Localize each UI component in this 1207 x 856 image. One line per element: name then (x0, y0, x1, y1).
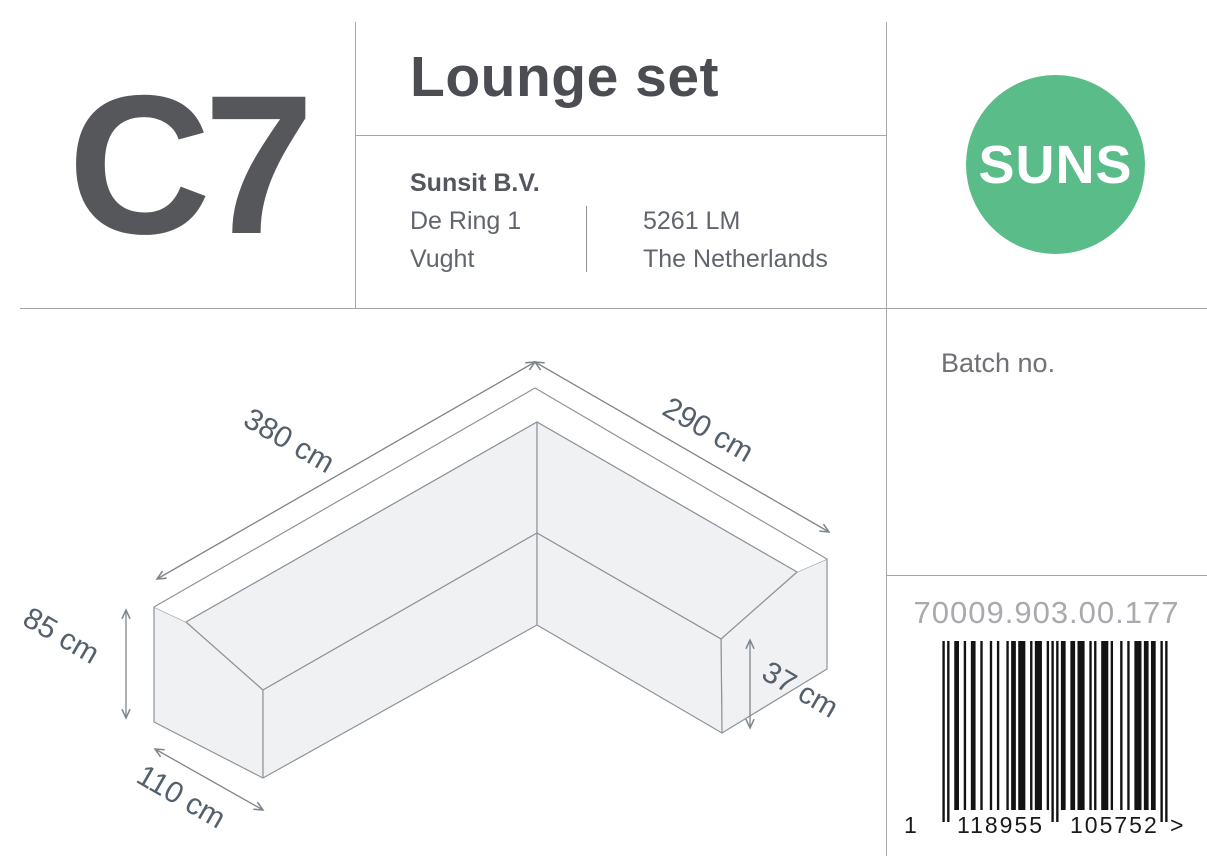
barcode-bar (1120, 641, 1122, 810)
barcode (942, 641, 1168, 822)
dim-label-380: 380 cm (238, 402, 340, 480)
barcode-bar (954, 641, 959, 810)
barcode-bar (1151, 641, 1156, 810)
barcode-bar (942, 641, 944, 822)
divider-horizontal-main (20, 308, 1207, 309)
address-divider (586, 206, 587, 272)
dim-label-290: 290 cm (657, 391, 759, 469)
dim-label-110: 110 cm (131, 759, 231, 836)
manufacturer-name: Sunsit B.V. (410, 164, 540, 202)
manufacturer-postal-code: 5261 LM (643, 202, 828, 240)
product-code-cell: C7 (20, 22, 355, 308)
barcode-bar (1089, 641, 1091, 810)
barcode-bar (1047, 641, 1049, 810)
barcode-bar (1030, 641, 1032, 810)
suns-logo-text: SUNS (978, 134, 1132, 196)
barcode-bar (1165, 641, 1167, 822)
barcode-bar (1111, 641, 1113, 810)
product-name: Lounge set (410, 44, 719, 110)
barcode-bar (1070, 641, 1075, 810)
manufacturer-country: The Netherlands (643, 240, 828, 278)
barcode-bar (1127, 641, 1129, 810)
product-code: C7 (68, 66, 307, 264)
barcode-bar (964, 641, 966, 810)
barcode-bar (1056, 641, 1058, 822)
barcode-bar (947, 641, 949, 822)
barcode-bar (971, 641, 976, 810)
barcode-bar (1094, 641, 1096, 810)
manufacturer-street: De Ring 1 (410, 202, 540, 240)
divider-vertical-right (886, 22, 887, 856)
barcode-bar (1160, 641, 1162, 822)
barcode-bar (1077, 641, 1084, 810)
batch-number-label: Batch no. (941, 348, 1055, 379)
dim-label-85: 85 cm (17, 601, 104, 670)
barcode-bar (1018, 641, 1025, 810)
manufacturer-city: Vught (410, 240, 540, 278)
suns-logo: SUNS (966, 75, 1145, 254)
divider-batch-barcode (886, 575, 1207, 576)
barcode-bar (1006, 641, 1008, 810)
manufacturer-address-right: 5261 LM The Netherlands (643, 202, 828, 278)
divider-under-title (355, 135, 886, 136)
barcode-bars (942, 641, 1167, 822)
barcode-bar (1011, 641, 1016, 810)
barcode-bar (1061, 641, 1066, 810)
barcode-digits-right: 105752 (1070, 812, 1159, 839)
barcode-bar (1051, 641, 1053, 822)
barcode-bar (997, 641, 999, 810)
barcode-bar (1144, 641, 1149, 810)
barcode-suffix: > (1170, 812, 1183, 839)
barcode-bar (1134, 641, 1141, 810)
lounge-set-diagram: 380 cm 290 cm 85 cm 110 cm 37 cm (0, 330, 886, 856)
barcode-bar (990, 641, 992, 810)
divider-vertical-left (355, 22, 356, 308)
barcode-bar (980, 641, 982, 810)
barcode-digits-left: 118955 (957, 812, 1044, 839)
barcode-bar (1101, 641, 1108, 810)
product-label: C7 Lounge set Sunsit B.V. De Ring 1 Vugh… (0, 0, 1207, 856)
manufacturer-address-left: Sunsit B.V. De Ring 1 Vught (410, 164, 540, 278)
article-number: 70009.903.00.177 (886, 595, 1207, 631)
barcode-digit-first: 1 (904, 812, 917, 839)
barcode-bar (1035, 641, 1042, 810)
